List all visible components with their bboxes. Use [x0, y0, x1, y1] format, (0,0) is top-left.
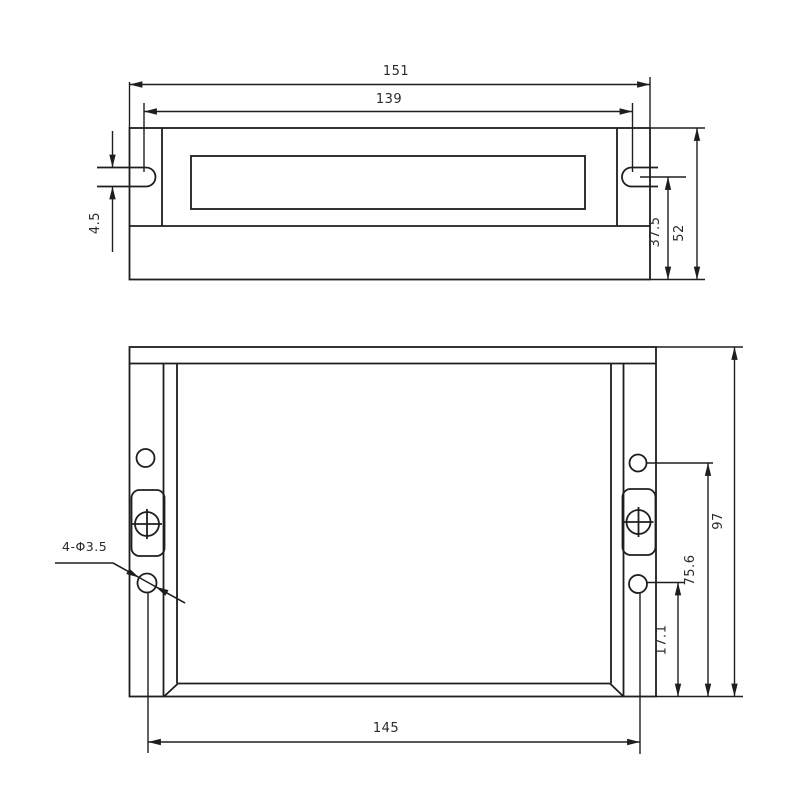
- technical-drawing: 151 139 4.5 37.5 52: [0, 0, 800, 799]
- mounting-hole-top-right: [630, 455, 647, 472]
- drawing-canvas: 151 139 4.5 37.5 52: [0, 0, 800, 799]
- screw-head-right: [624, 507, 654, 537]
- dim-overall-width-text: 151: [383, 64, 409, 79]
- dim-lower-hole-text: 17.1: [655, 625, 670, 656]
- dim-slot-spacing-text: 139: [376, 92, 402, 107]
- hole-callout-leader: [55, 563, 185, 603]
- dim-overall-depth-text: 52: [672, 224, 687, 242]
- dim-upper-hole-text: 75.6: [683, 555, 698, 586]
- mounting-hole-bottom-left: [138, 574, 157, 593]
- dim-slot-width-text: 4.5: [88, 212, 103, 234]
- chamfer-left: [164, 684, 178, 697]
- hole-callout: 4-Φ3.5: [55, 539, 185, 603]
- front-view-body-outline: [130, 347, 657, 697]
- mounting-slot-left: [97, 168, 156, 187]
- dim-slot-width: 4.5: [88, 131, 113, 252]
- top-view: 151 139 4.5 37.5 52: [88, 64, 705, 280]
- screw-head-left: [132, 509, 162, 539]
- chamfer-right: [610, 684, 624, 697]
- mounting-hole-top-left: [137, 449, 155, 467]
- hole-callout-text: 4-Φ3.5: [62, 539, 107, 554]
- dim-overall-height-text: 97: [711, 512, 726, 530]
- dim-hole-spacing-text: 145: [373, 721, 399, 736]
- front-view: 97 75.6 17.1 145 4-Φ3.5: [55, 347, 743, 754]
- front-view-face-plate: [164, 364, 624, 697]
- mounting-hole-bottom-right: [629, 575, 647, 593]
- top-view-body-outline: [130, 128, 651, 280]
- dim-body-depth-text: 37.5: [648, 217, 663, 248]
- top-view-panel-window: [191, 156, 585, 209]
